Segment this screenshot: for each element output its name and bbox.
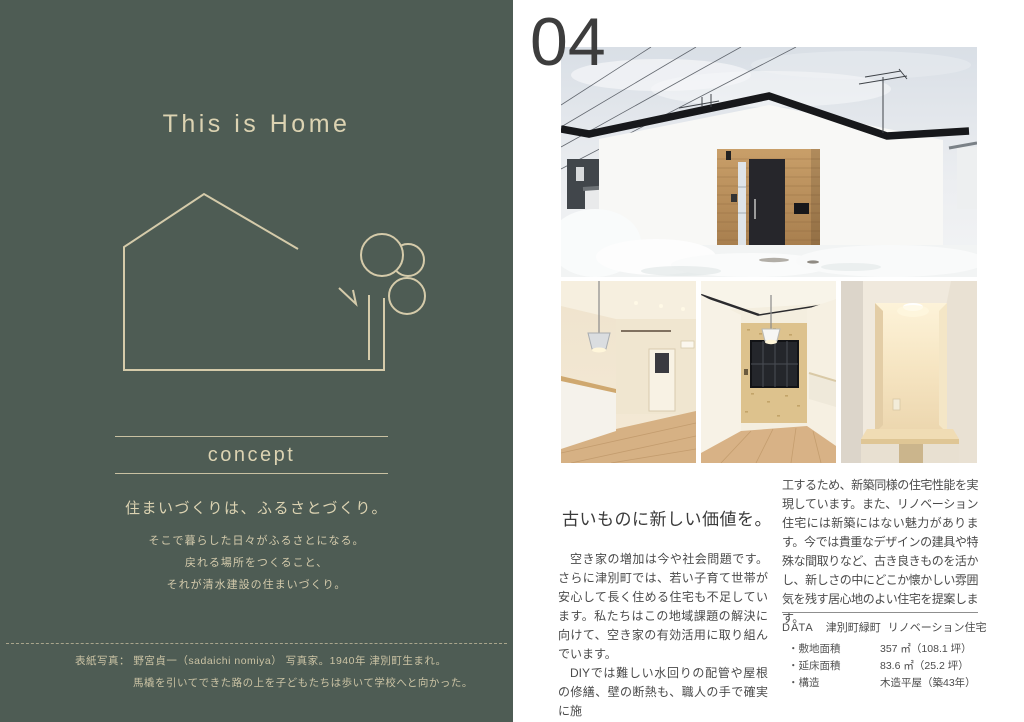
article-heading: 古いものに新しい価値を。	[562, 505, 782, 530]
data-row: ・敷地面積 357 ㎡（108.1 坪）	[782, 641, 978, 658]
cover-photo-caption: 表紙写真： 野宮貞一（sadaichi nomiya） 写真家。1940年 津別…	[75, 650, 495, 694]
left-page: This is Home concept 住まいづくりは、ふるさとづくり。 そこ…	[0, 0, 513, 722]
concept-line: 戻れる場所をつくること、	[0, 552, 513, 574]
caption-line: 表紙写真： 野宮貞一（sadaichi nomiya） 写真家。1940年 津別…	[75, 650, 495, 672]
data-row-label: ・構造	[782, 675, 880, 692]
concept-section: concept	[115, 436, 388, 474]
data-type: リノベーション住宅	[888, 622, 987, 634]
page-number: 04	[530, 6, 606, 78]
data-row-value: 83.6 ㎡（25.2 坪）	[880, 658, 978, 675]
data-row: ・構造 木造平屋（築43年）	[782, 675, 978, 692]
concept-line: それが清水建設の住まいづくり。	[0, 574, 513, 596]
dashed-divider	[6, 643, 507, 644]
interior-living-image	[561, 281, 696, 463]
data-divider	[782, 612, 978, 613]
data-header: DATA津別町緑町リノベーション住宅	[782, 619, 978, 635]
data-row-label: ・延床面積	[782, 658, 880, 675]
concept-line: そこで暮らした日々がふるさとになる。	[0, 530, 513, 552]
page-title: This is Home	[0, 110, 513, 139]
exterior-photo	[561, 47, 977, 277]
body-paragraph: 空き家の増加は今や社会問題です。さらに津別町では、若い子育て世帯が安心して長く住…	[558, 550, 768, 664]
interior-photo-alcove	[841, 281, 977, 463]
interior-photo-living	[561, 281, 696, 463]
concept-label: concept	[115, 444, 388, 467]
exterior-photo-image	[561, 47, 977, 277]
brochure-spread: This is Home concept 住まいづくりは、ふるさとづくり。 そこ…	[0, 0, 1024, 722]
concept-text: そこで暮らした日々がふるさとになる。 戻れる場所をつくること、 それが清水建設の…	[0, 530, 513, 596]
data-location: 津別町緑町	[826, 622, 881, 634]
data-section: DATA津別町緑町リノベーション住宅 ・敷地面積 357 ㎡（108.1 坪） …	[782, 612, 978, 692]
interior-dining-image	[701, 281, 836, 463]
interior-alcove-image	[841, 281, 977, 463]
data-label: DATA	[782, 622, 814, 634]
data-row-value: 357 ㎡（108.1 坪）	[880, 641, 978, 658]
data-rows: ・敷地面積 357 ㎡（108.1 坪） ・延床面積 83.6 ㎡（25.2 坪…	[782, 641, 978, 692]
house-tree-illustration-icon	[106, 178, 428, 400]
interior-photo-dining	[701, 281, 836, 463]
tagline: 住まいづくりは、ふるさとづくり。	[0, 497, 513, 518]
data-row: ・延床面積 83.6 ㎡（25.2 坪）	[782, 658, 978, 675]
body-paragraph: DIYでは難しい水回りの配管や屋根の修繕、壁の断熱も、職人の手で確実に施	[558, 664, 768, 721]
caption-line: 馬橇を引いてできた路の上を子どもたちは歩いて学校へと向かった。	[75, 672, 495, 694]
data-row-label: ・敷地面積	[782, 641, 880, 658]
body-column-right: 工するため、新築同様の住宅性能を実現しています。また、リノベーション住宅には新築…	[782, 476, 978, 628]
body-column-left: 空き家の増加は今や社会問題です。さらに津別町では、若い子育て世帯が安心して長く住…	[558, 550, 768, 721]
data-row-value: 木造平屋（築43年）	[880, 675, 978, 692]
